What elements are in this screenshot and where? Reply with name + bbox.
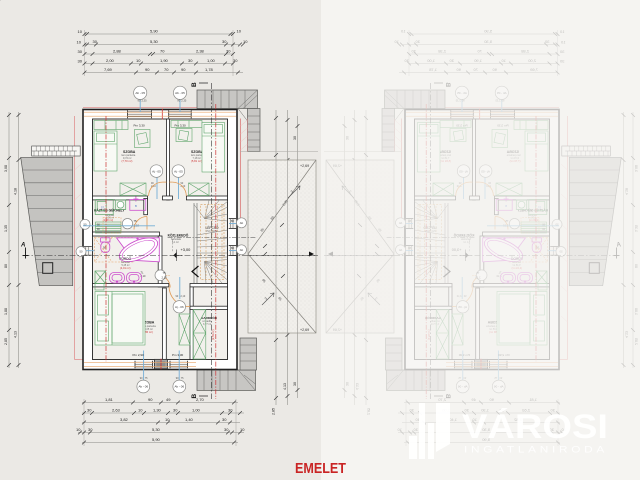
svg-text:EMELET: EMELET [295, 460, 346, 477]
svg-text:VÁROSI: VÁROSI [462, 408, 608, 446]
svg-text:INGATLANIRODA: INGATLANIRODA [464, 445, 608, 456]
